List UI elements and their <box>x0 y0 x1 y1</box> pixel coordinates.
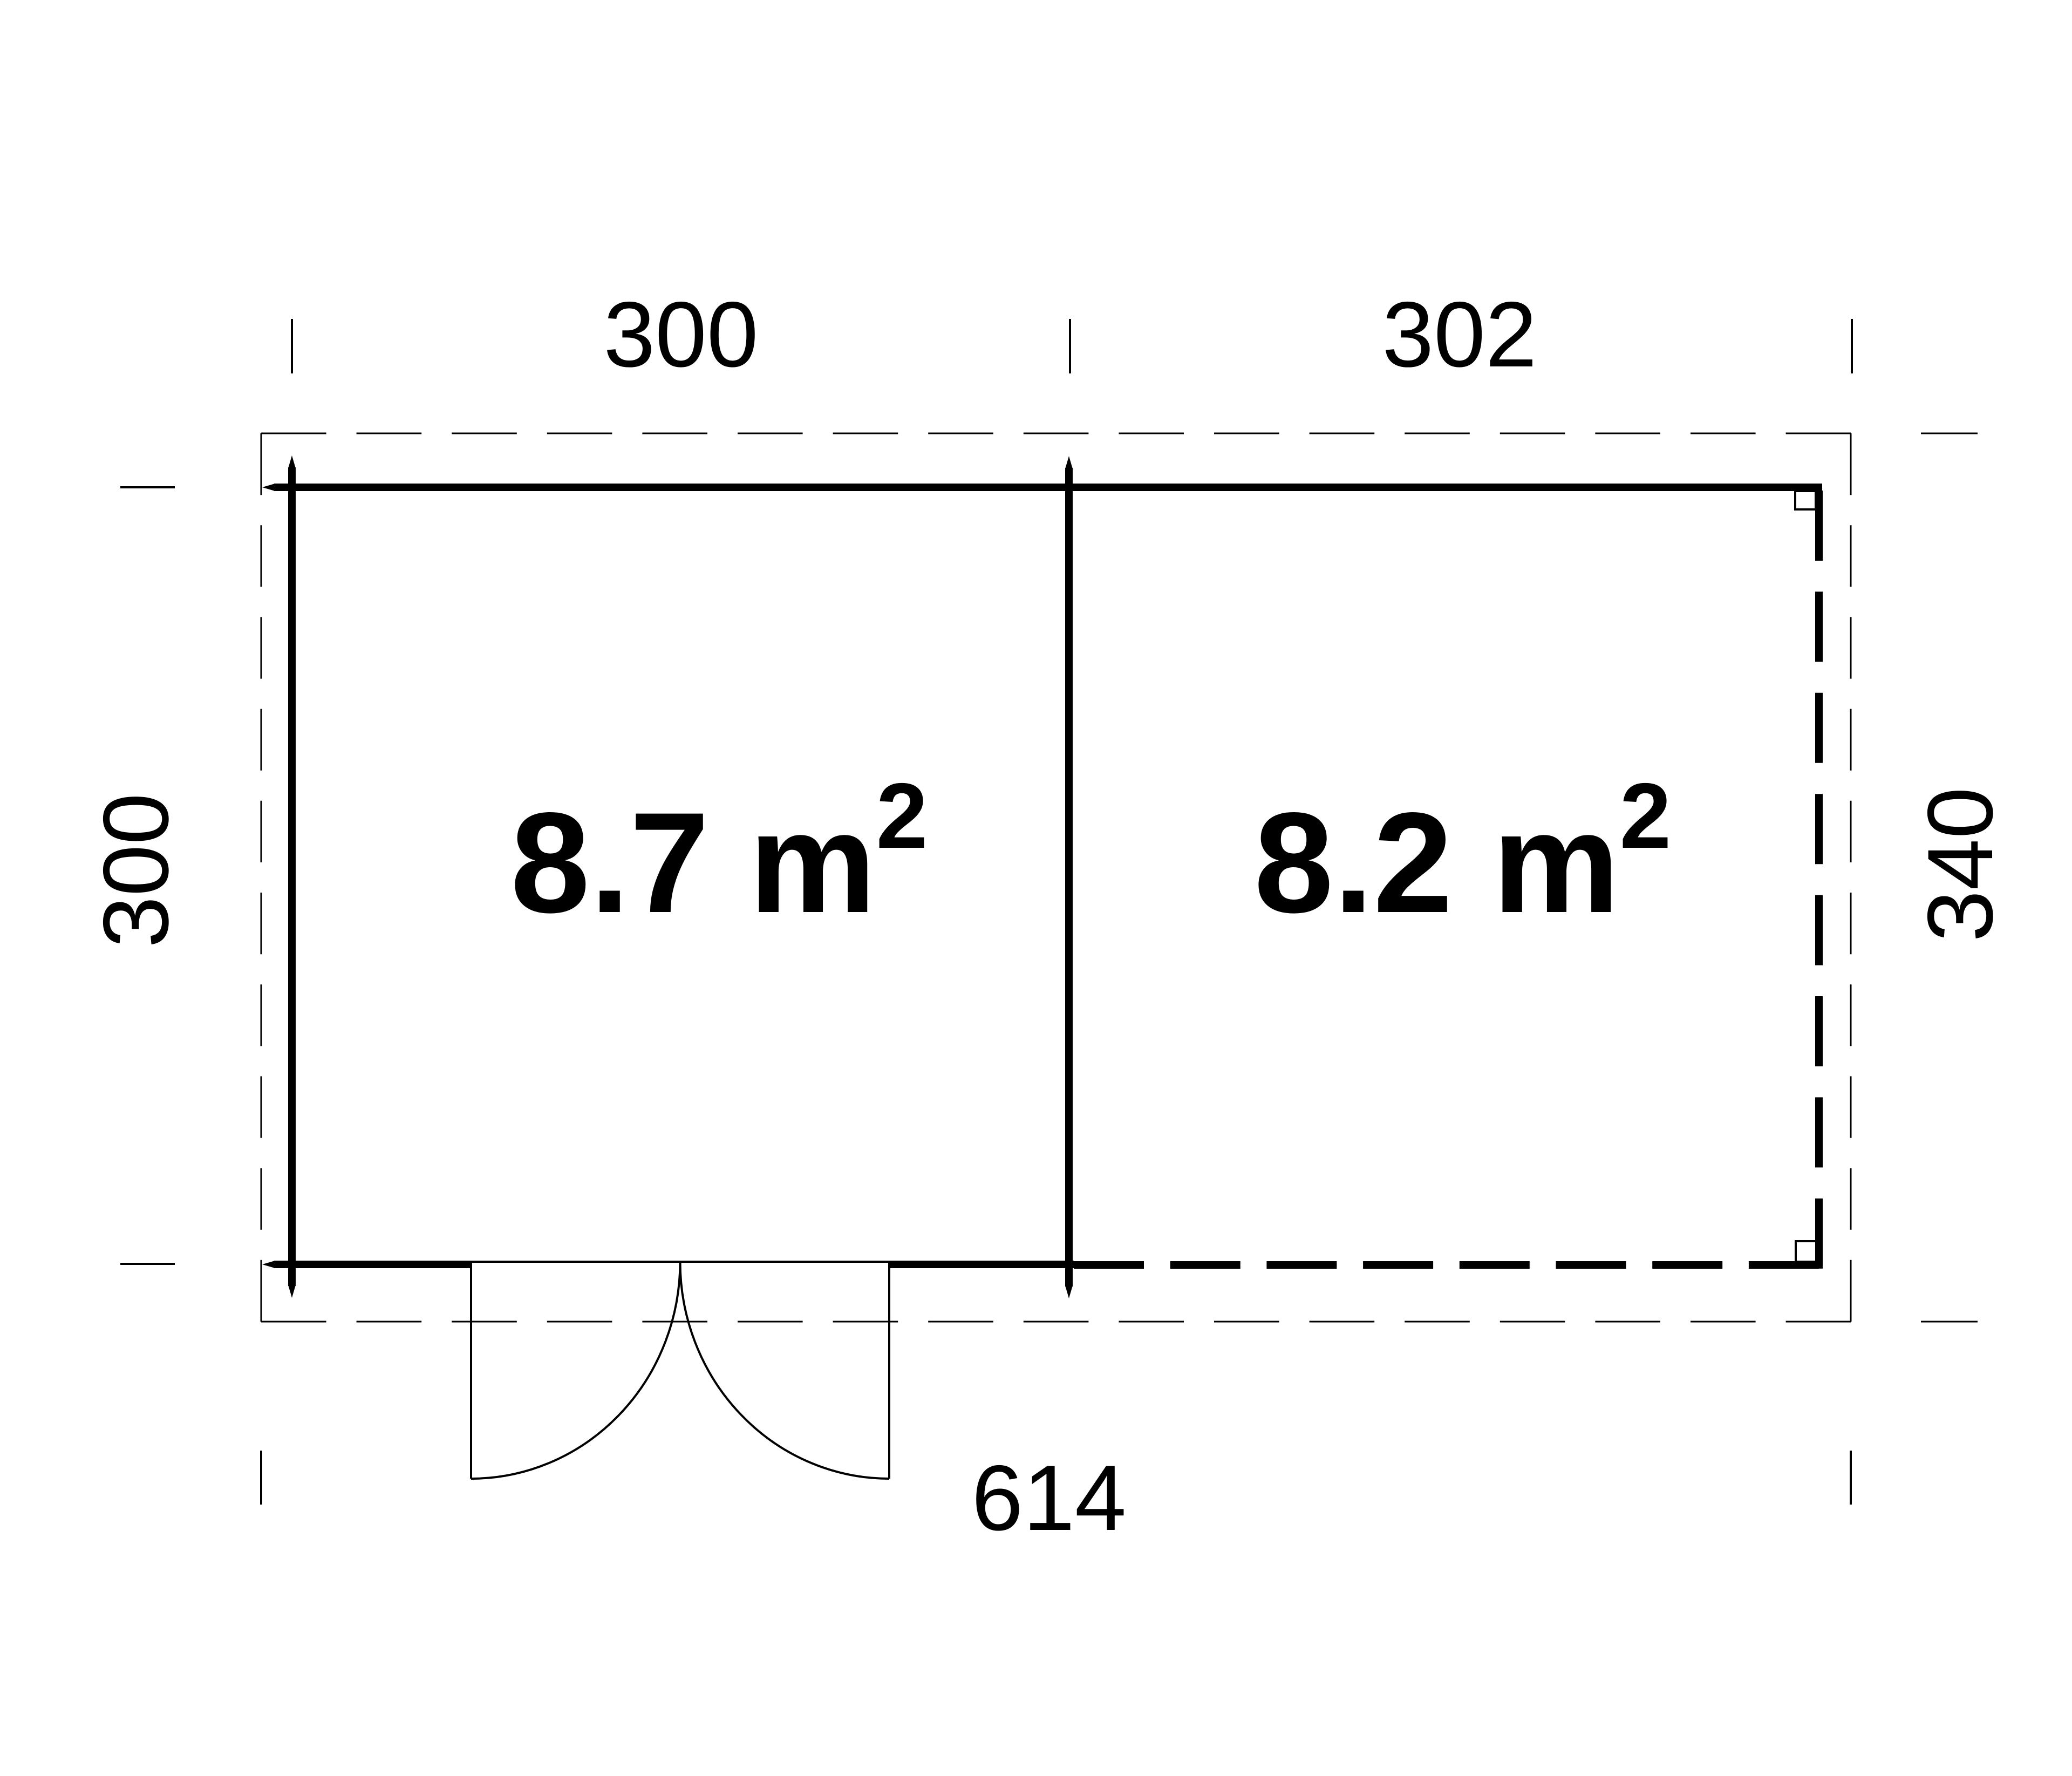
svg-text:8.2 m2: 8.2 m2 <box>1254 764 1671 943</box>
svg-text:300: 300 <box>84 793 188 948</box>
svg-text:614: 614 <box>972 1446 1127 1550</box>
svg-text:340: 340 <box>1909 787 2012 942</box>
svg-text:302: 302 <box>1382 283 1537 386</box>
svg-text:8.7 m2: 8.7 m2 <box>510 764 928 943</box>
svg-text:300: 300 <box>604 283 759 386</box>
